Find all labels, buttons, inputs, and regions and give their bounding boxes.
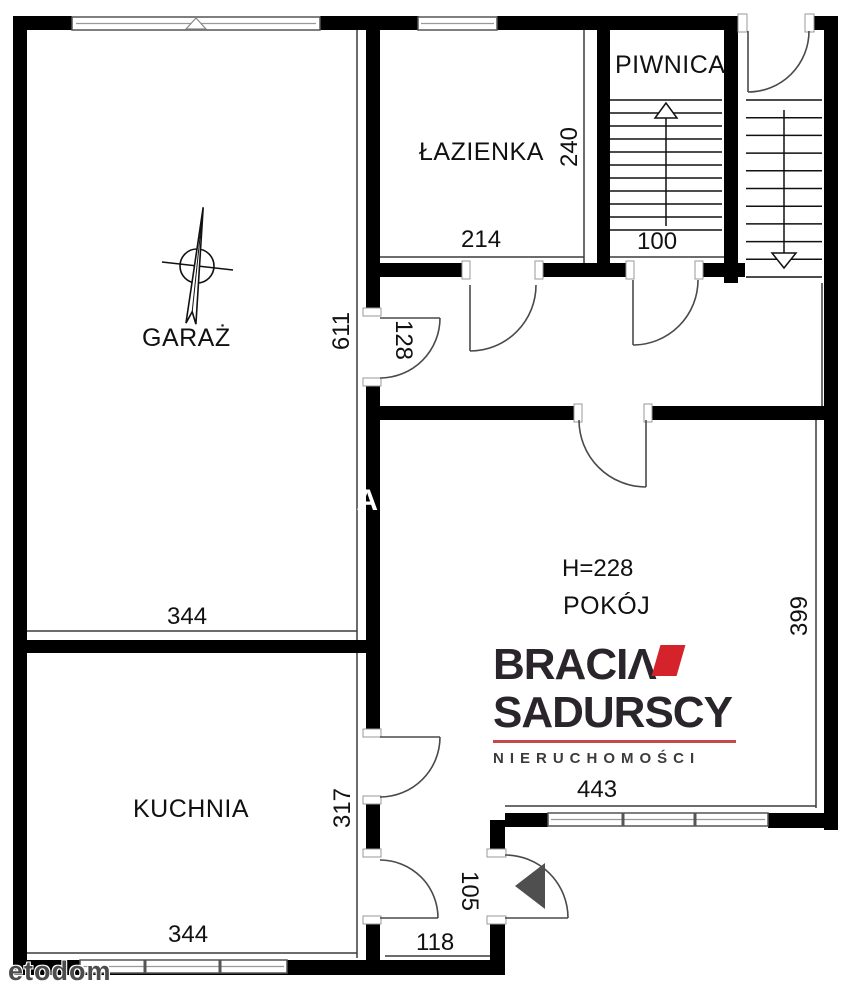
dim-garage-door-width: 128 <box>391 310 415 370</box>
dim-room-ceiling-height: H=228 <box>562 557 633 581</box>
agency-logo-red-parallelogram-icon <box>652 645 686 676</box>
dim-bathroom-depth: 240 <box>558 117 582 177</box>
agency-logo-line1: BRACIΛ <box>493 643 743 687</box>
dim-garage-depth: 611 <box>330 301 354 361</box>
stairs-down-arrow-icon <box>772 253 796 268</box>
room-label-bathroom: ŁAZIENKA <box>419 140 544 165</box>
agency-logo: BRACIΛ SADURSCY NIERUCHOMOŚCI <box>493 643 743 767</box>
cellar-door <box>633 280 698 345</box>
dim-cellar-width: 100 <box>637 230 677 254</box>
room-label-cellar: PIWNICA <box>615 53 725 78</box>
bathroom-door <box>470 285 536 351</box>
kitchen-hall-door <box>380 860 438 918</box>
stairwell-door <box>748 31 809 92</box>
dim-room-depth: 399 <box>788 586 812 646</box>
north-arrow-icon <box>162 207 233 324</box>
agency-logo-line3: NIERUCHOMOŚCI <box>493 750 743 767</box>
agency-logo-line1-text: BRACIΛ <box>493 640 656 689</box>
stairwell-stairs <box>746 100 822 277</box>
dim-kitchen-depth: 317 <box>331 778 355 838</box>
room-window <box>548 813 768 826</box>
agency-logo-line2: SADURSCY <box>493 691 743 735</box>
entrance-arrow-icon <box>515 863 545 909</box>
watermark: etodom <box>8 956 112 987</box>
cellar-stairs <box>610 100 722 230</box>
room-label-garage: GARAŻ <box>142 326 231 351</box>
dim-bathroom-width: 214 <box>461 228 501 252</box>
agency-logo-divider <box>493 740 736 743</box>
watermark-fragment: IA <box>348 484 378 518</box>
dim-hall-width: 118 <box>416 931 454 955</box>
garage-gate <box>72 17 320 30</box>
dim-hall-depth: 105 <box>457 861 481 921</box>
room-door <box>579 420 646 487</box>
bathroom-window <box>418 17 497 30</box>
dim-room-width: 443 <box>577 778 617 802</box>
dim-kitchen-width: 344 <box>168 923 208 947</box>
room-label-kitchen: KUCHNIA <box>133 797 249 822</box>
dim-garage-width: 344 <box>167 605 207 629</box>
kitchen-room-door <box>380 737 440 797</box>
stairs-up-arrow-icon <box>655 103 677 118</box>
floor-plan: GARAŻ ŁAZIENKA PIWNICA POKÓJ KUCHNIA H=2… <box>0 0 858 1000</box>
room-label-room: POKÓJ <box>563 594 650 619</box>
